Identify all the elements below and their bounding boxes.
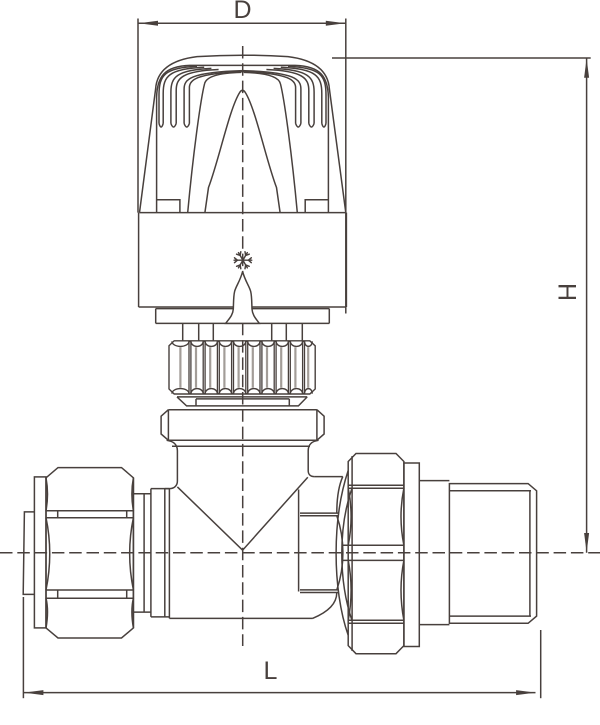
svg-text:D: D <box>233 0 251 24</box>
svg-text:L: L <box>264 657 278 685</box>
svg-text:H: H <box>553 283 581 301</box>
